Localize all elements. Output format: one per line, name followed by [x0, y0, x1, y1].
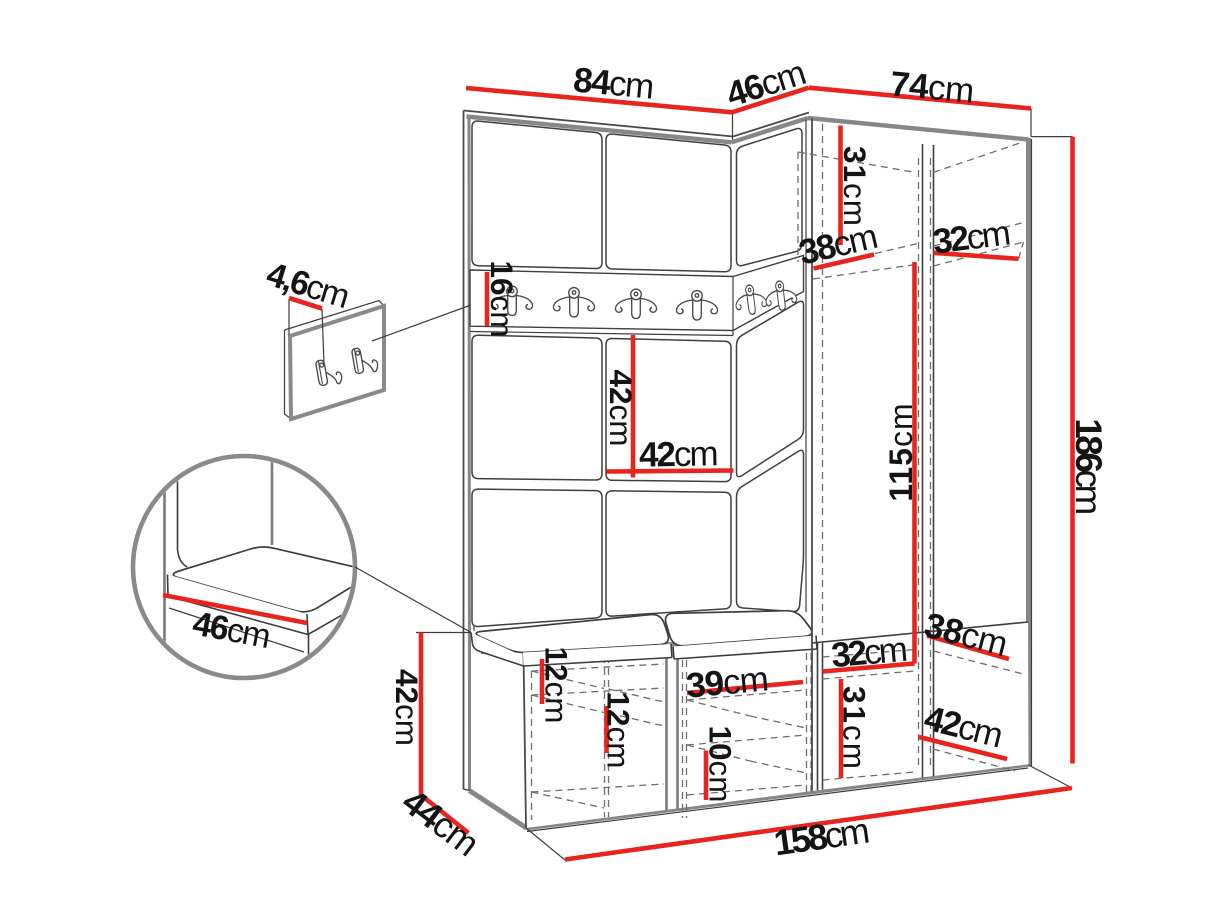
svg-text:31cm: 31cm [837, 146, 873, 227]
svg-text:115cm: 115cm [883, 402, 919, 501]
svg-text:31cm: 31cm [837, 686, 873, 771]
svg-text:42cm: 42cm [639, 434, 717, 474]
svg-text:42cm: 42cm [389, 669, 425, 746]
svg-text:84cm: 84cm [572, 61, 655, 107]
svg-text:186cm: 186cm [1068, 418, 1109, 513]
svg-text:39cm: 39cm [685, 659, 770, 705]
svg-text:12cm: 12cm [539, 646, 575, 723]
svg-text:32cm: 32cm [830, 630, 908, 675]
svg-text:10cm: 10cm [703, 725, 739, 802]
svg-text:74cm: 74cm [889, 64, 976, 110]
svg-text:16cm: 16cm [484, 260, 520, 337]
svg-text:42cm: 42cm [603, 369, 639, 446]
svg-text:12cm: 12cm [601, 691, 637, 768]
